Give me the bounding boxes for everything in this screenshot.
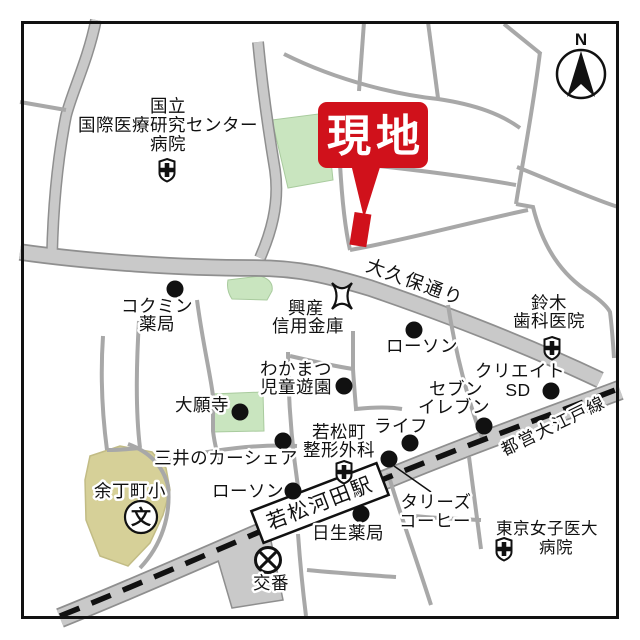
park-area-center xyxy=(228,276,273,300)
poi-daiganji: 大願寺 xyxy=(175,395,229,415)
svg-text:セブン: セブン xyxy=(429,379,483,399)
svg-text:児童遊園: 児童遊園 xyxy=(260,377,332,397)
svg-text:わかまつ: わかまつ xyxy=(260,359,332,379)
poi-wakamatsu-playground: わかまつ 児童遊園 xyxy=(260,359,332,397)
compass-north-label: N xyxy=(575,30,587,49)
poi-lawson-south: ローソン xyxy=(212,481,284,501)
svg-text:交番: 交番 xyxy=(253,573,289,593)
svg-text:コクミン: コクミン xyxy=(121,296,193,316)
hospital-icon xyxy=(160,159,175,182)
svg-text:薬局: 薬局 xyxy=(139,314,175,334)
koban-icon xyxy=(256,548,281,573)
svg-text:病院: 病院 xyxy=(150,134,186,154)
poi-lawson-north: ローソン xyxy=(386,336,458,356)
svg-text:若松町: 若松町 xyxy=(312,422,366,442)
hospital-icon xyxy=(337,461,352,484)
hospital-icon xyxy=(497,538,512,561)
svg-text:国立: 国立 xyxy=(150,96,186,116)
dot-wakamatsu-playground xyxy=(336,378,353,395)
hospital-icon xyxy=(545,337,560,360)
dot-create-sd xyxy=(543,383,560,400)
poi-seven-eleven: セブン イレブン xyxy=(418,379,490,417)
dot-life xyxy=(402,435,419,452)
poi-nissei-pharmacy: 日生薬局 xyxy=(312,523,384,543)
dot-daiganji xyxy=(232,404,249,421)
svg-text:イレブン: イレブン xyxy=(418,397,490,417)
dot-nissei xyxy=(353,506,370,523)
svg-text:歯科医院: 歯科医院 xyxy=(513,311,585,331)
dot-mitsui-carshare xyxy=(275,433,292,450)
svg-text:余丁町小: 余丁町小 xyxy=(94,481,166,501)
svg-text:コーヒー: コーヒー xyxy=(399,511,471,531)
svg-text:鈴木: 鈴木 xyxy=(531,293,567,313)
site-callout-label: 現地 xyxy=(327,112,425,161)
svg-text:興産: 興産 xyxy=(288,298,324,318)
dot-lawson-south xyxy=(285,483,302,500)
svg-text:クリエイト: クリエイト xyxy=(475,361,565,381)
poi-life: ライフ xyxy=(374,416,428,436)
dot-seven-eleven xyxy=(476,418,493,435)
svg-text:病院: 病院 xyxy=(539,538,573,557)
dot-tullys xyxy=(381,451,398,468)
svg-text:国際医療研究センター: 国際医療研究センター xyxy=(78,115,258,135)
svg-text:SD: SD xyxy=(505,380,530,400)
poi-tullys-coffee: タリーズ コーヒー xyxy=(399,492,472,531)
dot-kokumin xyxy=(167,281,184,298)
location-map: 若松河田駅 大久保通り 都営大江戸線 国立 国際医療研究センター 病院 コクミン… xyxy=(0,0,640,640)
svg-text:タリーズ: タリーズ xyxy=(400,492,471,512)
svg-text:東京女子医大: 東京女子医大 xyxy=(496,519,598,538)
map-canvas: 若松河田駅 大久保通り 都営大江戸線 国立 国際医療研究センター 病院 コクミン… xyxy=(0,0,640,640)
svg-text:信用金庫: 信用金庫 xyxy=(272,316,344,336)
svg-text:整形外科: 整形外科 xyxy=(303,440,375,460)
svg-text:文: 文 xyxy=(131,505,152,529)
poi-mitsui-carshare: 三井のカーシェア xyxy=(154,448,298,468)
